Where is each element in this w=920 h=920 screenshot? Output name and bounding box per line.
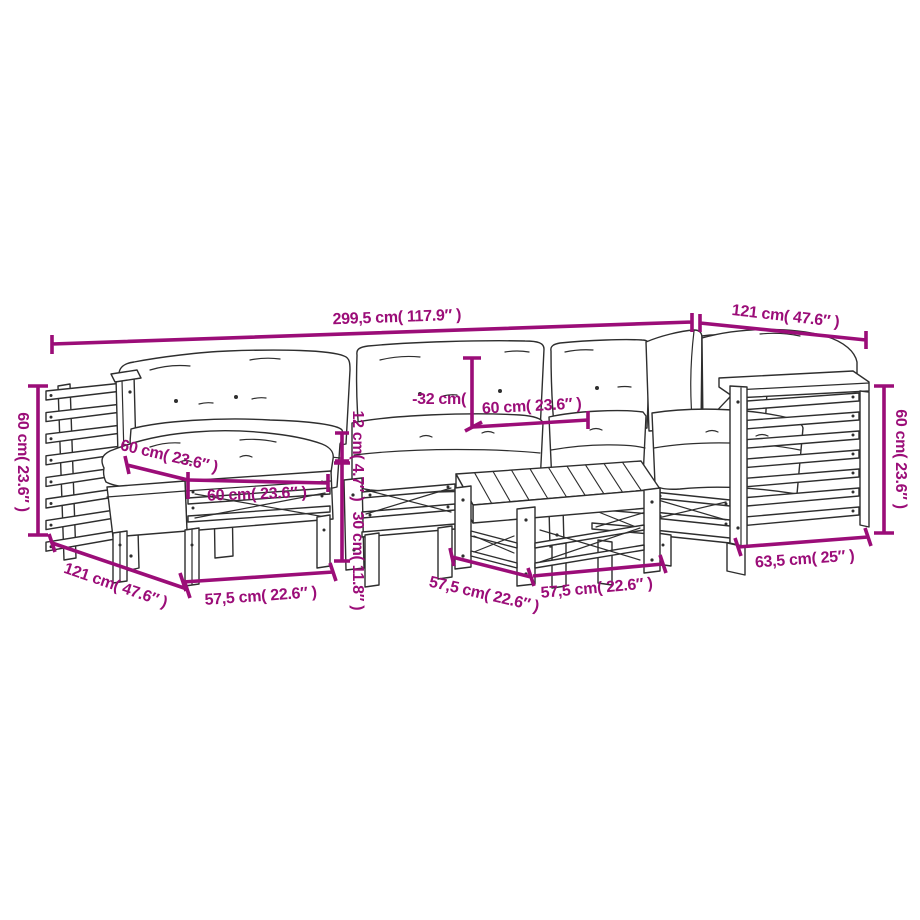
dim-ottoman-cushion-width-label: 60 cm( 23.6″ ) [207, 484, 307, 504]
dim-height-left-label: 60 cm( 23.6″ ) [14, 412, 31, 512]
dim-height-right-label: 60 cm( 23.6″ ) [892, 409, 909, 509]
dim-height-left: 60 cm( 23.6″ ) [14, 386, 48, 535]
dim-corner-module-width-label: 63,5 cm( 25″ ) [754, 548, 854, 572]
diagram-canvas: 299,5 cm( 117.9″ ) 121 cm( 47.6″ ) 60 cm… [0, 0, 920, 920]
dimension-diagram: 299,5 cm( 117.9″ ) 121 cm( 47.6″ ) 60 cm… [0, 0, 920, 920]
dim-corner-module-width: 63,5 cm( 25″ ) [735, 528, 871, 571]
dim-frame-height-label: 30 cm( 11.8″ ) [349, 512, 366, 611]
dim-total-width-label: 299,5 cm( 117.9″ ) [332, 307, 461, 328]
dim-cushion-thickness-label: 12 cm( 4.7″ ) [349, 411, 366, 502]
right-module-base [654, 492, 730, 566]
dim-ottoman-frame-width: 57,5 cm( 22.6″ ) [180, 563, 336, 609]
dim-height-right: 60 cm( 23.6″ ) [874, 386, 909, 533]
dim-ottoman-frame-width-label: 57,5 cm( 22.6″ ) [204, 584, 317, 609]
dim-backrest-height-label: -32 cm( [412, 391, 467, 408]
